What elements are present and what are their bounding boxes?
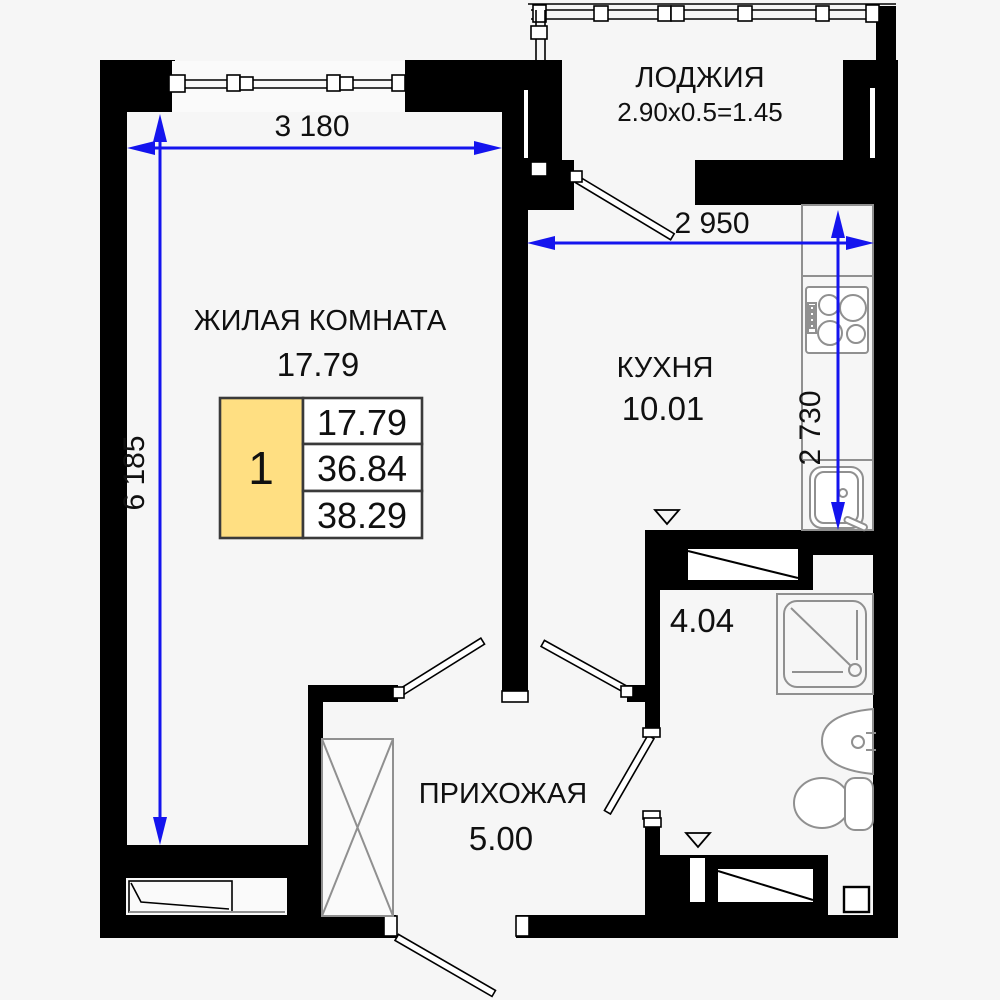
dim-label-kitchen-length: 2 730 bbox=[794, 390, 827, 465]
bathroom-area: 4.04 bbox=[670, 602, 734, 639]
summary-total-area: 38.29 bbox=[317, 495, 407, 536]
floor-drain-icon bbox=[844, 887, 869, 912]
summary-living-area: 17.79 bbox=[317, 402, 407, 443]
summary-area-without-balcony: 36.84 bbox=[317, 448, 407, 489]
door-swings bbox=[384, 171, 674, 996]
dim-label-kitchen-width: 2 950 bbox=[674, 207, 749, 240]
entrance-door-leaf bbox=[395, 934, 495, 996]
washbasin-icon bbox=[822, 709, 876, 774]
kitchen-door-leaf bbox=[541, 640, 628, 693]
dimension-kitchen-width: 2 950 bbox=[527, 207, 874, 250]
living-room-window-icon bbox=[169, 61, 405, 112]
kitchen-area: 10.01 bbox=[622, 390, 705, 427]
floor-plan-svg: 3 180 6 185 2 950 2 730 ЛОДЖИЯ 2.90x0.5=… bbox=[0, 0, 1000, 1000]
loggia-label: ЛОДЖИЯ bbox=[635, 62, 764, 94]
loggia-door-leaf bbox=[575, 177, 674, 240]
bathroom-door-leaf bbox=[604, 735, 654, 814]
living-room-area: 17.79 bbox=[277, 346, 360, 383]
summary-rooms-count: 1 bbox=[248, 442, 274, 494]
floor-plan: 3 180 6 185 2 950 2 730 ЛОДЖИЯ 2.90x0.5=… bbox=[0, 0, 1000, 1000]
living-room-label: ЖИЛАЯ КОМНАТА bbox=[194, 305, 447, 337]
dimension-living-width: 3 180 bbox=[127, 110, 502, 155]
shower-icon bbox=[777, 594, 873, 694]
dim-label-living-width: 3 180 bbox=[274, 110, 349, 143]
hallway-area: 5.00 bbox=[469, 820, 533, 857]
dim-label-living-length: 6 185 bbox=[118, 435, 151, 510]
living-room-door-leaf bbox=[397, 638, 485, 696]
hallway-label: ПРИХОЖАЯ bbox=[419, 778, 587, 810]
radiator-icon bbox=[126, 878, 287, 915]
wardrobe-icon bbox=[322, 739, 393, 916]
loggia-size-formula: 2.90x0.5=1.45 bbox=[617, 97, 783, 127]
toilet-icon bbox=[794, 778, 873, 830]
apartment-summary-table: 1 17.79 36.84 38.29 bbox=[220, 398, 422, 538]
kitchen-label: КУХНЯ bbox=[617, 352, 714, 384]
